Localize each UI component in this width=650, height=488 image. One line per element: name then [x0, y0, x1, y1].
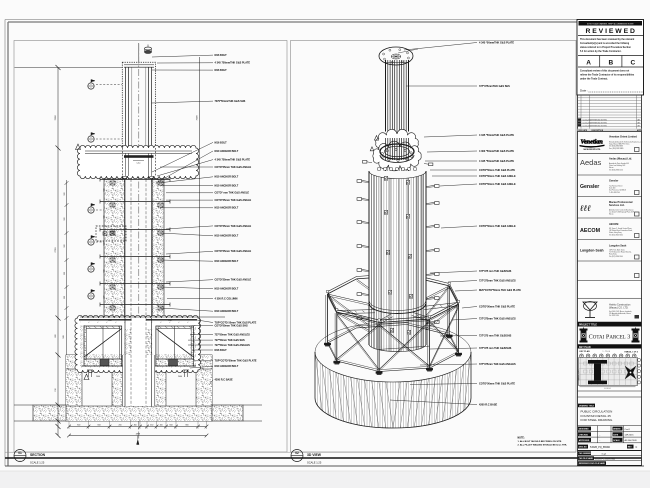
svg-text:Services Ltd.: Services Ltd. [609, 204, 625, 207]
svg-text:CHECKED: CHECKED [579, 434, 589, 436]
svg-text:DRAWING TITLE: DRAWING TITLE [579, 404, 595, 407]
svg-text:A: A [586, 60, 591, 67]
svg-text:APPROVED: APPROVED [579, 439, 590, 442]
svg-text:Hong Kong: Hong Kong [609, 254, 617, 256]
svg-text:M10 ANCHOR BOLT: M10 ANCHOR BOLT [215, 235, 239, 238]
svg-text:COTO*50mm THK G&S ANGLE: COTO*50mm THK G&S ANGLE [479, 225, 516, 228]
svg-text:4200 R.C BASE: 4200 R.C BASE [215, 379, 234, 382]
svg-text:AECOM: AECOM [609, 223, 618, 226]
svg-text:6: 6 [91, 208, 92, 210]
svg-text:DATE: DATE [613, 433, 619, 436]
svg-text:4 345 *50mmTHK G&S PLATE: 4 345 *50mmTHK G&S PLATE [479, 134, 514, 137]
svg-text:B: B [608, 60, 613, 67]
svg-text:M16 BOLT: M16 BOLT [215, 69, 228, 72]
svg-text:727*50mm THK G&S ANGLES: 727*50mm THK G&S ANGLES [215, 334, 251, 337]
svg-text:6: 6 [91, 267, 92, 269]
svg-text:4 345 750mmTHK G&S PLATE: 4 345 750mmTHK G&S PLATE [215, 159, 251, 162]
svg-text:COTO*50mm THK G&S PLATE: COTO*50mm THK G&S PLATE [479, 169, 515, 172]
svg-text:4 0 0 0 0: 4 0 0 0 0 [604, 388, 610, 390]
svg-text:844: 844 [98, 424, 101, 426]
svg-text:6: 6 [91, 137, 92, 139]
svg-text:COTO*50mm THK G&S ANGLE: COTO*50mm THK G&S ANGLE [479, 175, 516, 178]
svg-text:CAD FILE NAME: CAD FILE NAME [579, 457, 594, 460]
svg-text:6: 6 [91, 243, 92, 245]
svg-text:500: 500 [64, 245, 66, 248]
svg-text:200: 200 [160, 424, 163, 426]
svg-text:500: 500 [64, 272, 66, 275]
svg-text:under the Trade Contract.: under the Trade Contract. [580, 78, 608, 81]
svg-text:4 300 *50mmTHK G&S PLATE: 4 300 *50mmTHK G&S PLATE [479, 150, 514, 153]
svg-text:KEY PLAN: KEY PLAN [580, 350, 591, 353]
svg-text:relieve the Trade Contractor o: relieve the Trade Contractor of its resp… [580, 74, 635, 77]
svg-text:14F.2015: 14F.2015 [625, 435, 635, 437]
svg-text:6: 6 [91, 87, 92, 89]
svg-text:REVISED AS NOTED: REVISED AS NOTED [591, 119, 608, 122]
svg-text:7008: 7008 [197, 115, 199, 121]
svg-text:REVISED AS NOTED: REVISED AS NOTED [591, 122, 608, 125]
svg-text:727*375 mm THK G&S/SHS: 727*375 mm THK G&S/SHS [479, 347, 512, 350]
svg-text:2464: 2464 [96, 376, 100, 378]
svg-text:7070*50mmTHK G&S SHS: 7070*50mmTHK G&S SHS [215, 100, 246, 103]
svg-text:Macau: Macau [609, 167, 614, 169]
svg-text:500: 500 [64, 296, 66, 299]
svg-text:M10 ANCHOR BOLT: M10 ANCHOR BOLT [215, 310, 239, 313]
svg-text:01: 01 [18, 451, 22, 455]
svg-text:PARCEL 1 OF 4: PARCEL 1 OF 4 [625, 351, 638, 354]
svg-text:02: 02 [295, 451, 299, 455]
svg-text:COTO*25mm THK G&S ANGLE: COTO*25mm THK G&S ANGLE [215, 279, 252, 282]
svg-text:COTAI PARCEL 3: COTAI PARCEL 3 [589, 334, 631, 341]
svg-text:200: 200 [119, 424, 122, 426]
svg-text:C: C [636, 446, 638, 449]
svg-text:2700: 2700 [55, 247, 57, 253]
svg-text:500: 500 [64, 193, 66, 196]
svg-text:Fax: (853) 2882 8889: Fax: (853) 2882 8889 [609, 148, 624, 150]
svg-text:Tel: (852) 3922 9000: Tel: (852) 3922 9000 [609, 234, 623, 236]
svg-text:Gensler: Gensler [609, 180, 618, 183]
svg-text:status referred to in Projec: status referred to in Project Procedure … [580, 46, 632, 49]
svg-text:COTO*50mm THK G&S PLATE: COTO*50mm THK G&S PLATE [479, 305, 515, 308]
svg-text:SCALE 1:25: SCALE 1:25 [307, 461, 322, 465]
svg-text:DESIGNED: DESIGNED [579, 429, 590, 431]
svg-text:COTO*25mm THK G&S ANGLE: COTO*25mm THK G&S ANGLE [215, 166, 252, 169]
svg-text:727*375mmTHK G&S SHS: 727*375mmTHK G&S SHS [479, 85, 510, 88]
svg-text:500: 500 [104, 243, 106, 246]
svg-text:Macau: Macau [609, 214, 614, 216]
svg-text:REFERENCE DWG FILE NAME: REFERENCE DWG FILE NAME [579, 462, 606, 465]
svg-text:5152B_PC_B5090.dwg: 5152B_PC_B5090.dwg [595, 458, 615, 460]
svg-text:Consultant review of this docu: Consultant review of this document does … [580, 70, 629, 73]
svg-text:COTO*50mm THK G&S PLATE: COTO*50mm THK G&S PLATE [479, 382, 515, 385]
svg-text:M10 ANCHOR BOLT: M10 ANCHOR BOLT [215, 260, 239, 263]
svg-text:m-tyk: m-tyk [602, 452, 607, 455]
svg-text:500: 500 [104, 296, 106, 299]
svg-text:COTO*50mm THK G&S ANGLE: COTO*50mm THK G&S ANGLE [479, 183, 516, 186]
svg-text:727*50mm THK G&S SHS: 727*50mm THK G&S SHS [215, 339, 245, 342]
svg-text:COTO*50mm THK G&S SHS: COTO*50mm THK G&S SHS [215, 325, 248, 328]
svg-text:450: 450 [150, 424, 153, 426]
svg-text:DWG NO: DWG NO [579, 447, 588, 449]
svg-text:2. ALL FILLET WELDED SHOULD BE: 2. ALL FILLET WELDED SHOULD BE 5mm THK. [518, 444, 568, 447]
svg-text:4200 R.C BASE: 4200 R.C BASE [479, 403, 498, 406]
svg-text:CxxO: CxxO [625, 429, 631, 431]
svg-text:6: 6 [91, 211, 92, 213]
svg-text:SECTION: SECTION [30, 453, 46, 457]
svg-text:KEY PLAN: KEY PLAN [579, 346, 591, 349]
svg-text:Date :: Date : [580, 89, 588, 93]
svg-text:4 345 *50mmTHK G&S PLATE: 4 345 *50mmTHK G&S PLATE [479, 160, 514, 163]
svg-text:2898: 2898 [136, 433, 140, 435]
svg-text:500: 500 [63, 335, 65, 338]
svg-text:M10 ANCHOR BOLT: M10 ANCHOR BOLT [215, 207, 239, 210]
svg-text:Aedas: Aedas [580, 158, 602, 167]
svg-text:5.4 for action by the Trade Co: 5.4 for action by the Trade Contractor. [580, 50, 622, 53]
svg-text:7008: 7008 [55, 115, 57, 121]
svg-text:500: 500 [104, 270, 106, 273]
svg-text:6: 6 [91, 240, 92, 242]
svg-text:T: 415.433.3700: T: 415.433.3700 [609, 192, 620, 194]
svg-text:800: 800 [77, 424, 80, 426]
svg-text:244: 244 [109, 320, 112, 322]
svg-text:727*375 mm THK G&S/SHS: 727*375 mm THK G&S/SHS [479, 270, 512, 273]
svg-text:Gensler: Gensler [580, 184, 599, 190]
svg-text:M16 BOLT: M16 BOLT [215, 141, 228, 144]
svg-text:727*50mm THK G&S ANGLES: 727*50mm THK G&S ANGLES [215, 344, 251, 347]
svg-text:2464: 2464 [178, 376, 182, 378]
svg-text:244: 244 [169, 320, 172, 322]
svg-text:COTO* mm THK G&S ANGLE: COTO* mm THK G&S ANGLE [215, 192, 250, 195]
svg-text:M10 ANCHOR BOLT: M10 ANCHOR BOLT [215, 365, 239, 368]
svg-text:REVISED AS NOTED: REVISED AS NOTED [591, 124, 608, 127]
svg-text:3D VIEW: 3D VIEW [307, 453, 322, 457]
svg-text:PROJECT TITLE: PROJECT TITLE [579, 325, 597, 327]
svg-text:727*375mm THK G&S ANGLES: 727*375mm THK G&S ANGLES [479, 279, 516, 282]
svg-text:AS SHOWN: AS SHOWN [625, 439, 637, 442]
svg-text:M10 ANCHOR BOLT: M10 ANCHOR BOLT [215, 288, 239, 291]
svg-text:1 : 7 5 0 0: 1 : 7 5 0 0 [603, 351, 611, 353]
svg-text:TOP*COTO*50mm THK G&S PLATE: TOP*COTO*50mm THK G&S PLATE [215, 360, 257, 363]
svg-text:Langdon·Seah: Langdon·Seah [580, 249, 604, 253]
svg-text:450: 450 [134, 424, 137, 426]
svg-text:R E V I E W E D: R E V I E W E D [585, 28, 635, 35]
svg-text:ℓℓℓ: ℓℓℓ [580, 203, 591, 213]
svg-text:4 345 *50mmTHK G&S PLATE: 4 345 *50mmTHK G&S PLATE [479, 41, 514, 44]
svg-text:COTO*25mm THK G&S ANGLE: COTO*25mm THK G&S ANGLE [215, 225, 252, 228]
svg-text:M10 ANCHOR BOLT: M10 ANCHOR BOLT [215, 176, 239, 179]
svg-text:M20*COTO*50mm THK G&S PLATE: M20*COTO*50mm THK G&S PLATE [479, 289, 521, 292]
svg-text:727*375 mm THK G&S/SHS: 727*375 mm THK G&S/SHS [479, 334, 512, 337]
svg-text:SCALE: SCALE [613, 439, 620, 442]
svg-text:(Macau) CO. LTD.: (Macau) CO. LTD. [609, 307, 629, 310]
svg-text:M16 BOLT: M16 BOLT [215, 349, 228, 352]
svg-text:FOR STEEL DRAWING: FOR STEEL DRAWING [581, 418, 613, 422]
svg-text:Tel: (853) 2833 1026: Tel: (853) 2833 1026 [609, 169, 623, 171]
svg-text:This document has been reviewe: This document has been reviewed by the r… [580, 38, 634, 41]
svg-text:6: 6 [91, 84, 92, 86]
svg-text:AECOM: AECOM [580, 228, 601, 234]
svg-text:Tel: (853) 2882 8888: Tel: (853) 2882 8888 [609, 146, 623, 148]
svg-text:DRAWN: DRAWN [613, 428, 621, 431]
svg-text:1. ALL BOLT SHOULD BE FIXING O: 1. ALL BOLT SHOULD BE FIXING ON SITE. [518, 440, 563, 443]
svg-text:6: 6 [91, 294, 92, 296]
svg-text:SCALE 1:25: SCALE 1:25 [30, 461, 45, 465]
svg-text:NOTE:: NOTE: [518, 438, 525, 440]
svg-text:500: 500 [64, 218, 66, 221]
svg-text:M16 BOLT: M16 BOLT [215, 54, 228, 57]
svg-text:1-0-1: 1-0-1 [137, 162, 141, 164]
svg-text:5152B_PQ_B5090: 5152B_PQ_B5090 [590, 446, 611, 449]
svg-text:Langdon Seah: Langdon Seah [609, 245, 627, 248]
svg-text:Venetian Orient Limited: Venetian Orient Limited [609, 136, 637, 139]
svg-text:Consultant(s)(s) and is accord: Consultant(s)(s) and is accorded the fol… [580, 42, 630, 45]
svg-text:M10 ANCHOR BOLT: M10 ANCHOR BOLT [215, 184, 239, 187]
svg-text:Aedas (Macau) Ltd.: Aedas (Macau) Ltd. [609, 158, 632, 161]
svg-text:M10 ANCHOR BOLT: M10 ANCHOR BOLT [215, 150, 239, 153]
svg-text:C: C [631, 60, 636, 67]
svg-text:4 350 R.C COLUMN: 4 350 R.C COLUMN [215, 298, 238, 301]
svg-text:COTO*25mm THK G&S ANGLE: COTO*25mm THK G&S ANGLE [215, 250, 252, 253]
svg-text:500: 500 [104, 189, 106, 192]
svg-text:6: 6 [91, 297, 92, 299]
svg-text:Tel: 2878 1830: Tel: 2878 1830 [609, 315, 619, 317]
svg-text:China Law Building 16/F: China Law Building 16/F [609, 165, 625, 167]
svg-text:COTO*25mm THK G&S ANGLE: COTO*25mm THK G&S ANGLE [215, 199, 252, 202]
svg-text:500: 500 [104, 216, 106, 219]
svg-text:6: 6 [91, 140, 92, 142]
svg-text:844: 844 [170, 424, 173, 426]
svg-text:800: 800 [186, 424, 189, 426]
svg-text:6: 6 [91, 270, 92, 272]
svg-text:CAD NUMBER: CAD NUMBER [579, 452, 592, 455]
svg-text:Venetian: Venetian [581, 139, 604, 146]
svg-text:727*375mm THK G&S ANGLES: 727*375mm THK G&S ANGLES [479, 317, 516, 320]
svg-text:727*375mm THK G&S ANGLES: 727*375mm THK G&S ANGLES [479, 363, 516, 366]
svg-text:4 345 750mmTHK G&S PLATE: 4 345 750mmTHK G&S PLATE [215, 62, 251, 65]
svg-text:Tel: (852) 2830 3500: Tel: (852) 2830 3500 [609, 256, 623, 258]
